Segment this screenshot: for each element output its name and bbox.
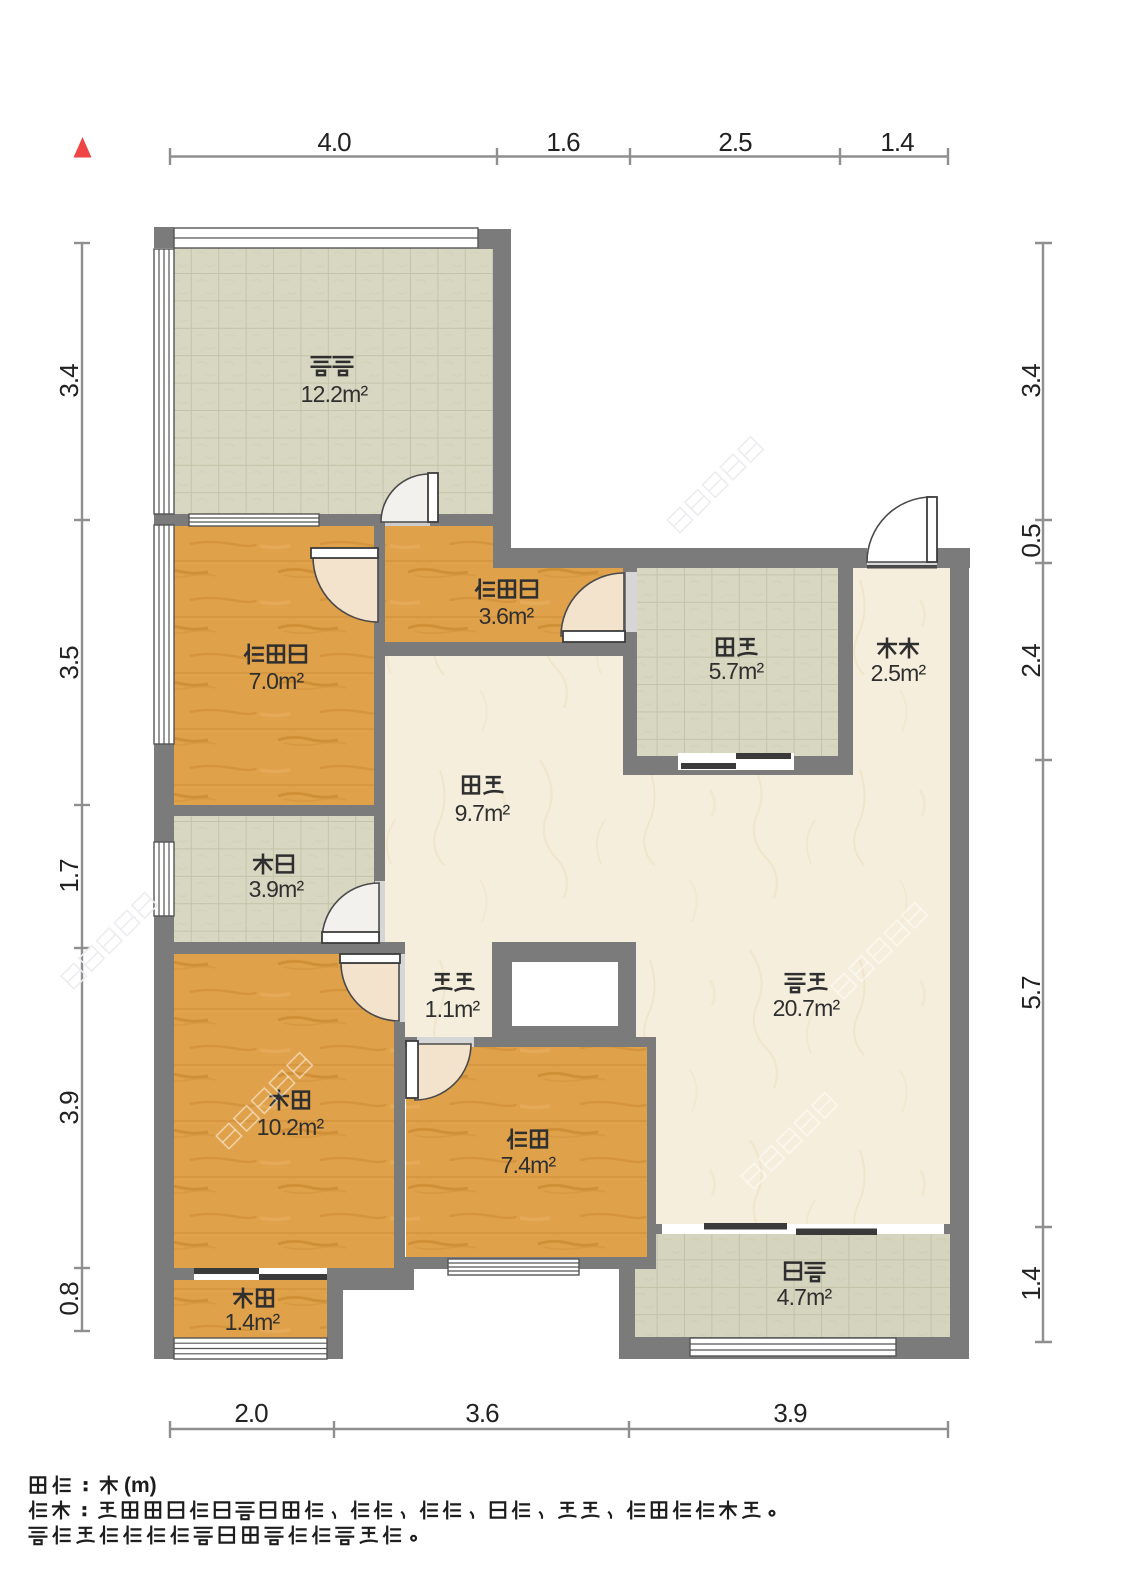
- svg-text:1.4m²: 1.4m²: [225, 1309, 281, 1335]
- svg-text:7.4m²: 7.4m²: [501, 1152, 557, 1178]
- svg-text:4.0: 4.0: [317, 127, 351, 157]
- svg-text:1.1m²: 1.1m²: [425, 996, 481, 1022]
- svg-text:1.4: 1.4: [1016, 1267, 1046, 1301]
- svg-text:3.4: 3.4: [54, 364, 84, 398]
- svg-text:5.7: 5.7: [1016, 976, 1046, 1010]
- svg-text:3.5: 3.5: [54, 646, 84, 680]
- svg-text:3.9m²: 3.9m²: [249, 876, 305, 902]
- svg-text:20.7m²: 20.7m²: [773, 995, 841, 1021]
- svg-text:1.6: 1.6: [546, 127, 580, 157]
- svg-text:10.2m²: 10.2m²: [257, 1114, 325, 1140]
- svg-text:3.4: 3.4: [1016, 364, 1046, 398]
- svg-text:4.7m²: 4.7m²: [777, 1284, 833, 1310]
- svg-text:2.4: 2.4: [1016, 644, 1046, 678]
- svg-text:(m): (m): [124, 1474, 157, 1497]
- svg-text:2.0: 2.0: [234, 1398, 268, 1428]
- svg-text:2.5: 2.5: [718, 127, 752, 157]
- svg-text:3.6m²: 3.6m²: [479, 603, 535, 629]
- svg-text:2.5m²: 2.5m²: [871, 660, 927, 686]
- svg-text:3.6: 3.6: [465, 1398, 499, 1428]
- svg-text:3.9: 3.9: [773, 1398, 807, 1428]
- svg-text:0.5: 0.5: [1016, 524, 1046, 558]
- svg-text:9.7m²: 9.7m²: [455, 800, 511, 826]
- svg-text:1.4: 1.4: [880, 127, 914, 157]
- svg-text:1.7: 1.7: [54, 859, 84, 893]
- svg-text:12.2m²: 12.2m²: [301, 381, 369, 407]
- svg-text:0.8: 0.8: [54, 1282, 84, 1316]
- svg-text:5.7m²: 5.7m²: [709, 658, 765, 684]
- svg-text:3.9: 3.9: [54, 1091, 84, 1125]
- svg-text:7.0m²: 7.0m²: [249, 668, 305, 694]
